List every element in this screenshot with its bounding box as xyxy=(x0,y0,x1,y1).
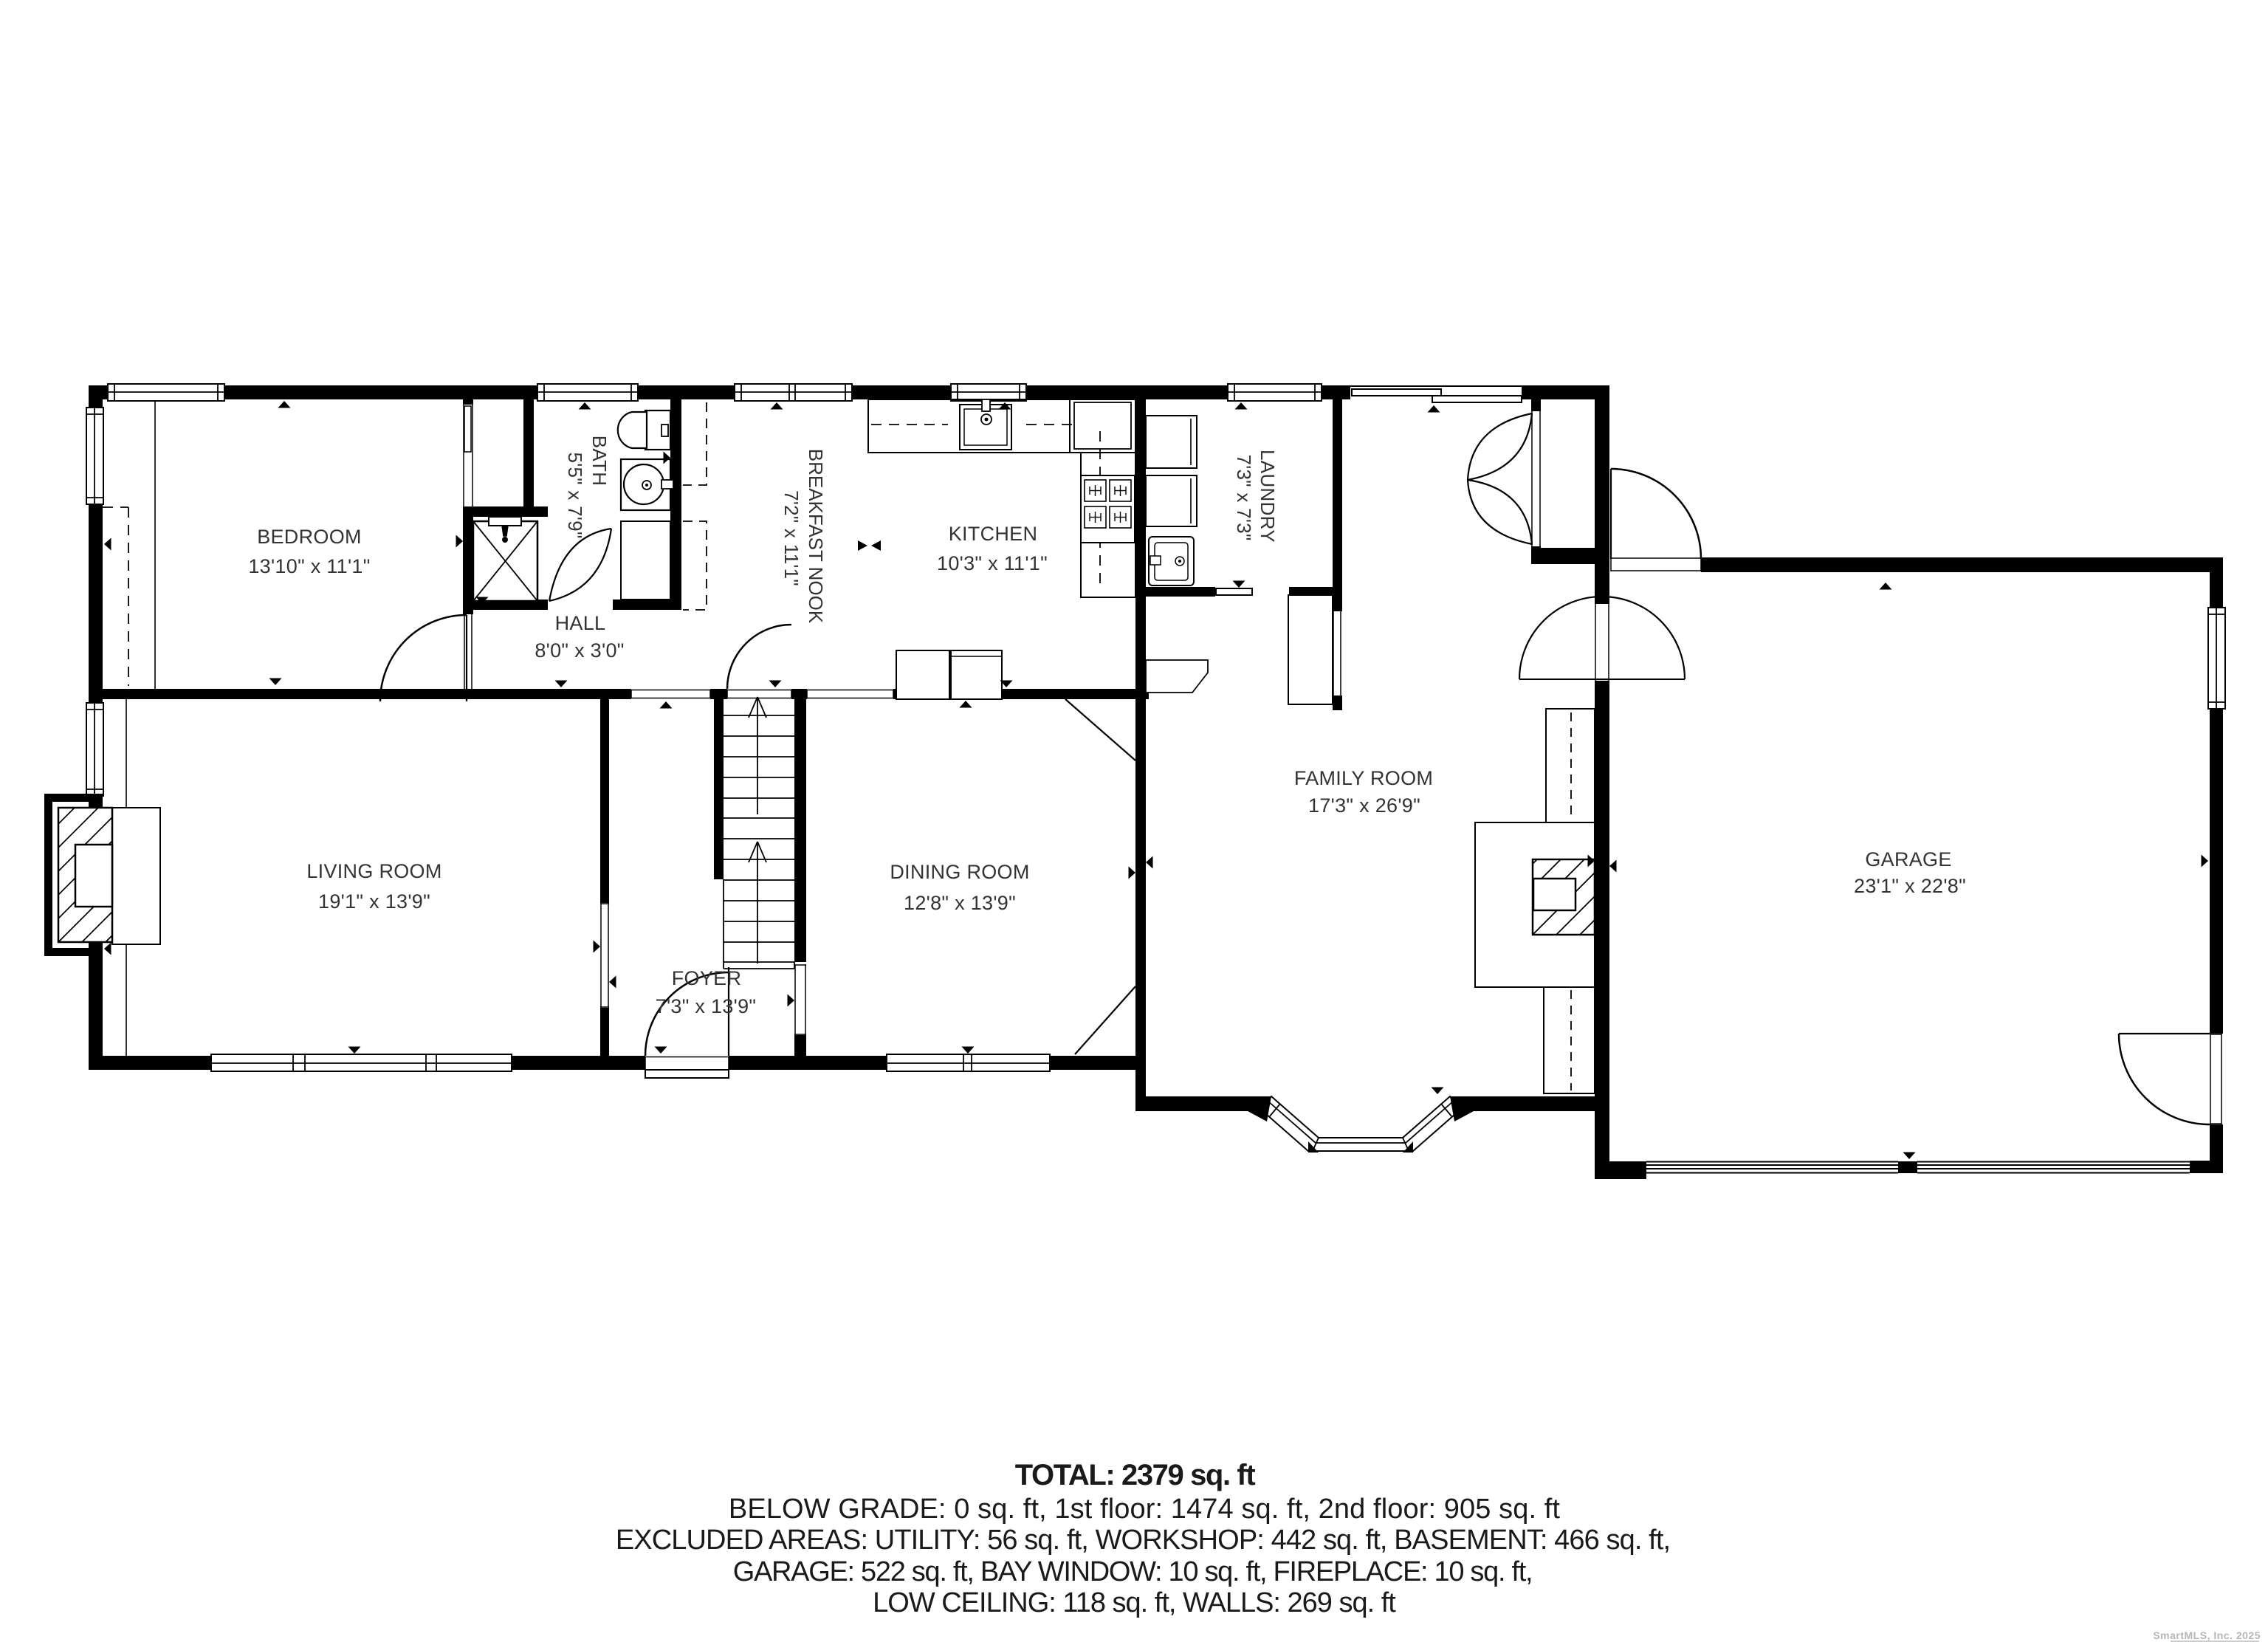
svg-text:GARAGE: 522 sq. ft, BAY WINDOW: GARAGE: 522 sq. ft, BAY WINDOW: 10 sq. f… xyxy=(733,1556,1533,1587)
svg-text:DINING ROOM: DINING ROOM xyxy=(890,861,1029,883)
svg-text:LOW CEILING: 118 sq. ft, WALLS: LOW CEILING: 118 sq. ft, WALLS: 269 sq. … xyxy=(873,1587,1396,1618)
svg-text:19'1" x 13'9": 19'1" x 13'9" xyxy=(318,890,430,913)
svg-text:HALL: HALL xyxy=(555,612,606,634)
svg-text:17'3" x 26'9": 17'3" x 26'9" xyxy=(1308,794,1420,817)
svg-text:13'10" x 11'1": 13'10" x 11'1" xyxy=(248,555,370,577)
svg-text:BEDROOM: BEDROOM xyxy=(257,526,362,548)
svg-text:BATH: BATH xyxy=(588,436,611,487)
svg-text:GARAGE: GARAGE xyxy=(1865,848,1951,870)
svg-text:12'8" x 13'9": 12'8" x 13'9" xyxy=(904,892,1016,914)
svg-text:7'3" x 7'3": 7'3" x 7'3" xyxy=(1233,455,1255,541)
svg-text:LAUNDRY: LAUNDRY xyxy=(1257,450,1279,543)
svg-text:23'1" x 22'8": 23'1" x 22'8" xyxy=(1854,875,1966,897)
svg-text:BREAKFAST NOOK: BREAKFAST NOOK xyxy=(805,449,827,624)
svg-text:8'0" x 3'0": 8'0" x 3'0" xyxy=(535,639,624,662)
svg-text:LIVING ROOM: LIVING ROOM xyxy=(306,860,441,882)
svg-text:BELOW GRADE: 0 sq. ft, 1st flo: BELOW GRADE: 0 sq. ft, 1st floor: 1474 s… xyxy=(729,1494,1561,1525)
svg-text:FOYER: FOYER xyxy=(672,967,742,989)
svg-text:KITCHEN: KITCHEN xyxy=(949,523,1038,545)
svg-text:7'2" x 11'1": 7'2" x 11'1" xyxy=(780,490,803,586)
svg-text:FAMILY ROOM: FAMILY ROOM xyxy=(1294,767,1433,789)
svg-text:7'3" x 13'9": 7'3" x 13'9" xyxy=(656,995,757,1017)
svg-text:TOTAL: 2379 sq. ft: TOTAL: 2379 sq. ft xyxy=(1015,1459,1256,1491)
svg-text:10'3" x 11'1": 10'3" x 11'1" xyxy=(937,552,1048,574)
svg-text:SmartMLS, Inc. 2025: SmartMLS, Inc. 2025 xyxy=(2153,1629,2261,1641)
svg-text:5'5" x 7'9": 5'5" x 7'9" xyxy=(564,453,586,539)
svg-text:EXCLUDED AREAS: UTILITY: 56 sq: EXCLUDED AREAS: UTILITY: 56 sq. ft, WORK… xyxy=(616,1525,1670,1556)
